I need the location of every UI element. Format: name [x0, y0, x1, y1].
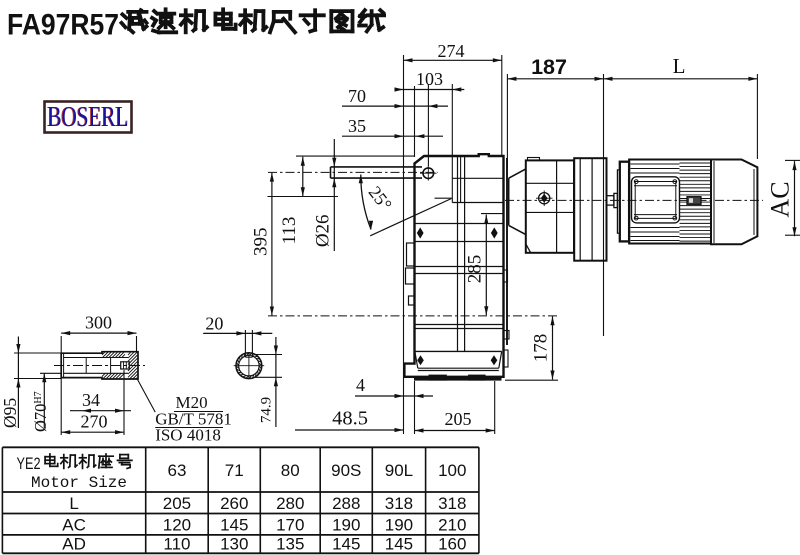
svg-text:318: 318: [385, 494, 413, 513]
svg-text:145: 145: [385, 535, 413, 554]
svg-text:AD: AD: [62, 535, 86, 554]
svg-text:190: 190: [385, 516, 413, 535]
svg-text:ISO 4018: ISO 4018: [155, 426, 221, 445]
svg-text:4: 4: [356, 375, 365, 395]
svg-text:70: 70: [348, 86, 366, 106]
svg-text:190: 190: [332, 516, 360, 535]
svg-text:145: 145: [332, 535, 360, 554]
svg-text:71: 71: [225, 461, 244, 480]
svg-text:160: 160: [438, 535, 466, 554]
svg-text:270: 270: [81, 412, 108, 432]
svg-text:103: 103: [416, 69, 443, 89]
svg-text:48.5: 48.5: [332, 408, 368, 430]
svg-text:130: 130: [220, 535, 248, 554]
svg-text:FA97R57: FA97R57: [7, 9, 119, 42]
svg-text:318: 318: [438, 494, 466, 513]
svg-text:285: 285: [465, 255, 486, 284]
svg-text:L: L: [69, 494, 78, 513]
svg-text:35: 35: [348, 116, 366, 136]
svg-text:AC: AC: [766, 181, 795, 217]
svg-text:L: L: [673, 54, 686, 78]
svg-text:288: 288: [332, 494, 360, 513]
svg-text:80: 80: [281, 461, 300, 480]
svg-text:260: 260: [220, 494, 248, 513]
svg-text:280: 280: [276, 494, 304, 513]
svg-text:YE2: YE2: [17, 455, 41, 473]
svg-text:170: 170: [276, 516, 304, 535]
svg-text:110: 110: [163, 535, 190, 554]
svg-text:AC: AC: [62, 516, 86, 535]
svg-text:135: 135: [276, 535, 304, 554]
svg-text:300: 300: [85, 313, 112, 333]
svg-text:BOSERL: BOSERL: [48, 102, 129, 133]
svg-text:74.9: 74.9: [259, 397, 275, 423]
svg-text:145: 145: [220, 516, 248, 535]
svg-text:187: 187: [531, 55, 567, 79]
svg-text:90L: 90L: [385, 461, 413, 480]
svg-text:100: 100: [438, 461, 466, 480]
svg-text:395: 395: [250, 227, 271, 256]
svg-text:Motor Size: Motor Size: [31, 474, 127, 492]
svg-text:34: 34: [82, 390, 100, 410]
svg-text:20: 20: [205, 314, 223, 334]
svg-text:Ø95: Ø95: [0, 398, 20, 428]
svg-text:205: 205: [163, 494, 191, 513]
svg-text:90S: 90S: [331, 461, 361, 480]
svg-text:210: 210: [438, 516, 466, 535]
svg-text:274: 274: [438, 41, 465, 61]
svg-text:113: 113: [279, 217, 300, 245]
svg-text:178: 178: [531, 334, 552, 363]
svg-text:205: 205: [445, 409, 472, 429]
svg-text:63: 63: [167, 461, 186, 480]
svg-text:120: 120: [163, 516, 191, 535]
svg-text:Ø26: Ø26: [313, 214, 334, 247]
